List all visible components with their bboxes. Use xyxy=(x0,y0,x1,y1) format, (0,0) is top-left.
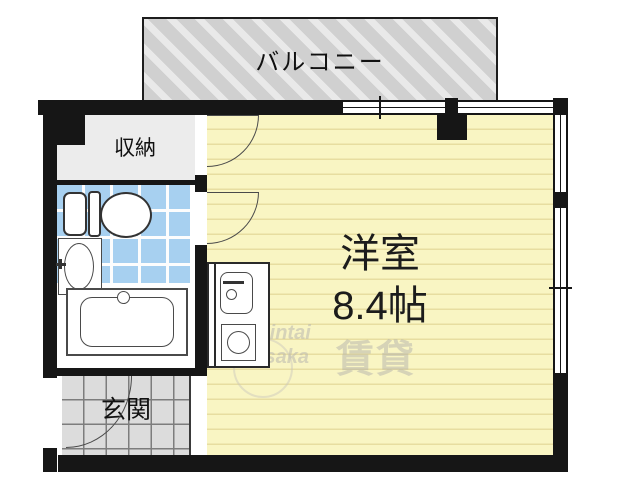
wall-bottom xyxy=(58,455,568,472)
kitchen-faucet-icon xyxy=(223,281,244,284)
floor-plan: バルコニー 収納 Chintai Osaka 賃貸 洋室 8.4帖 玄関 xyxy=(0,0,640,480)
bathtub-inner xyxy=(80,297,174,347)
storage-label: 収納 xyxy=(96,132,156,162)
toilet-icon xyxy=(100,192,152,238)
wall-right-lower xyxy=(553,373,568,472)
window-top-b xyxy=(458,100,553,115)
pillar-block xyxy=(437,115,467,140)
window-divider-tick-top xyxy=(379,96,381,119)
toilet-tank-icon xyxy=(63,192,87,236)
wall-bath-entrance-divider xyxy=(43,368,207,376)
bathtub-drain-icon xyxy=(117,291,130,304)
window-right-upper xyxy=(553,115,568,192)
window-divider-tick-right xyxy=(549,287,572,289)
window-right-lower xyxy=(553,208,568,373)
burner-icon xyxy=(227,331,250,354)
wall-corner-top-right xyxy=(553,98,568,115)
wall-inner-lower xyxy=(195,245,207,368)
window-top-a xyxy=(343,100,445,115)
watermark-kanji: 賃貸 xyxy=(336,328,416,383)
balcony-label: バルコニー xyxy=(255,42,385,77)
kitchen-counter-edge xyxy=(214,263,216,367)
sink-icon xyxy=(64,243,94,290)
kitchen-drain-icon xyxy=(226,289,237,300)
entrance-step-line xyxy=(189,376,191,455)
wall-left-thick-block xyxy=(43,100,85,145)
faucet-icon-vertical xyxy=(59,259,62,269)
wall-left-lower xyxy=(43,448,57,472)
wall-right-segment xyxy=(553,192,568,208)
wall-storage-bath-divider xyxy=(57,180,207,185)
balcony-area: バルコニー xyxy=(142,17,498,102)
